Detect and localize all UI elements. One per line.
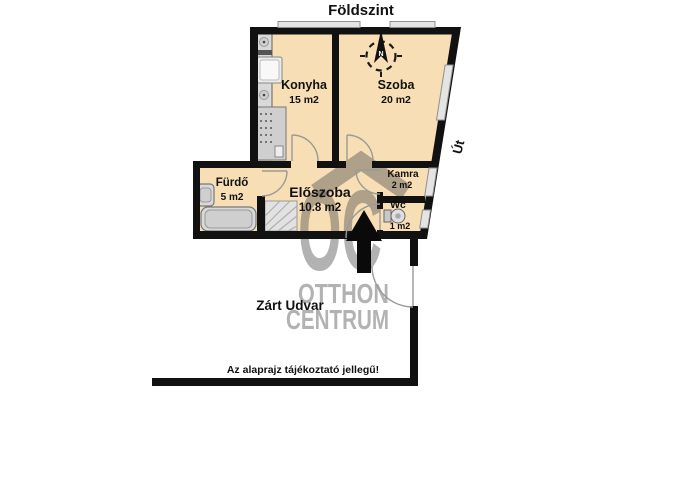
disclaimer-text: Az alaprajz tájékoztató jellegű! xyxy=(227,365,379,377)
window xyxy=(390,22,435,28)
room-name-szoba: Szoba xyxy=(378,79,415,93)
floor-plan-canvas: OC OTTHON CENTRUM xyxy=(0,0,684,500)
stairs-icon xyxy=(265,201,297,231)
window xyxy=(278,22,360,28)
room-name-furdo: Fürdő xyxy=(216,177,249,190)
room-area-furdo: 5 m2 xyxy=(221,192,244,203)
room-name-kamra: Kamra xyxy=(387,169,418,180)
room-area-konyha: 15 m2 xyxy=(289,95,319,107)
room-area-eloszoba: 10.8 m2 xyxy=(299,202,341,215)
room-name-konyha: Konyha xyxy=(281,79,327,93)
floor-plan: OC OTTHON CENTRUM xyxy=(0,0,684,500)
room-name-wc: Wc xyxy=(390,200,406,212)
bathtub-icon xyxy=(201,207,256,231)
room-area-kamra: 2 m2 xyxy=(392,181,413,191)
room-area-wc: 1 m2 xyxy=(390,222,411,232)
courtyard-label: Zárt Udvar xyxy=(256,299,324,314)
room-name-eloszoba: Előszoba xyxy=(289,185,350,200)
compass-north-letter: N xyxy=(378,51,383,58)
page-title: Földszint xyxy=(328,3,394,20)
room-area-szoba: 20 m2 xyxy=(381,95,411,107)
